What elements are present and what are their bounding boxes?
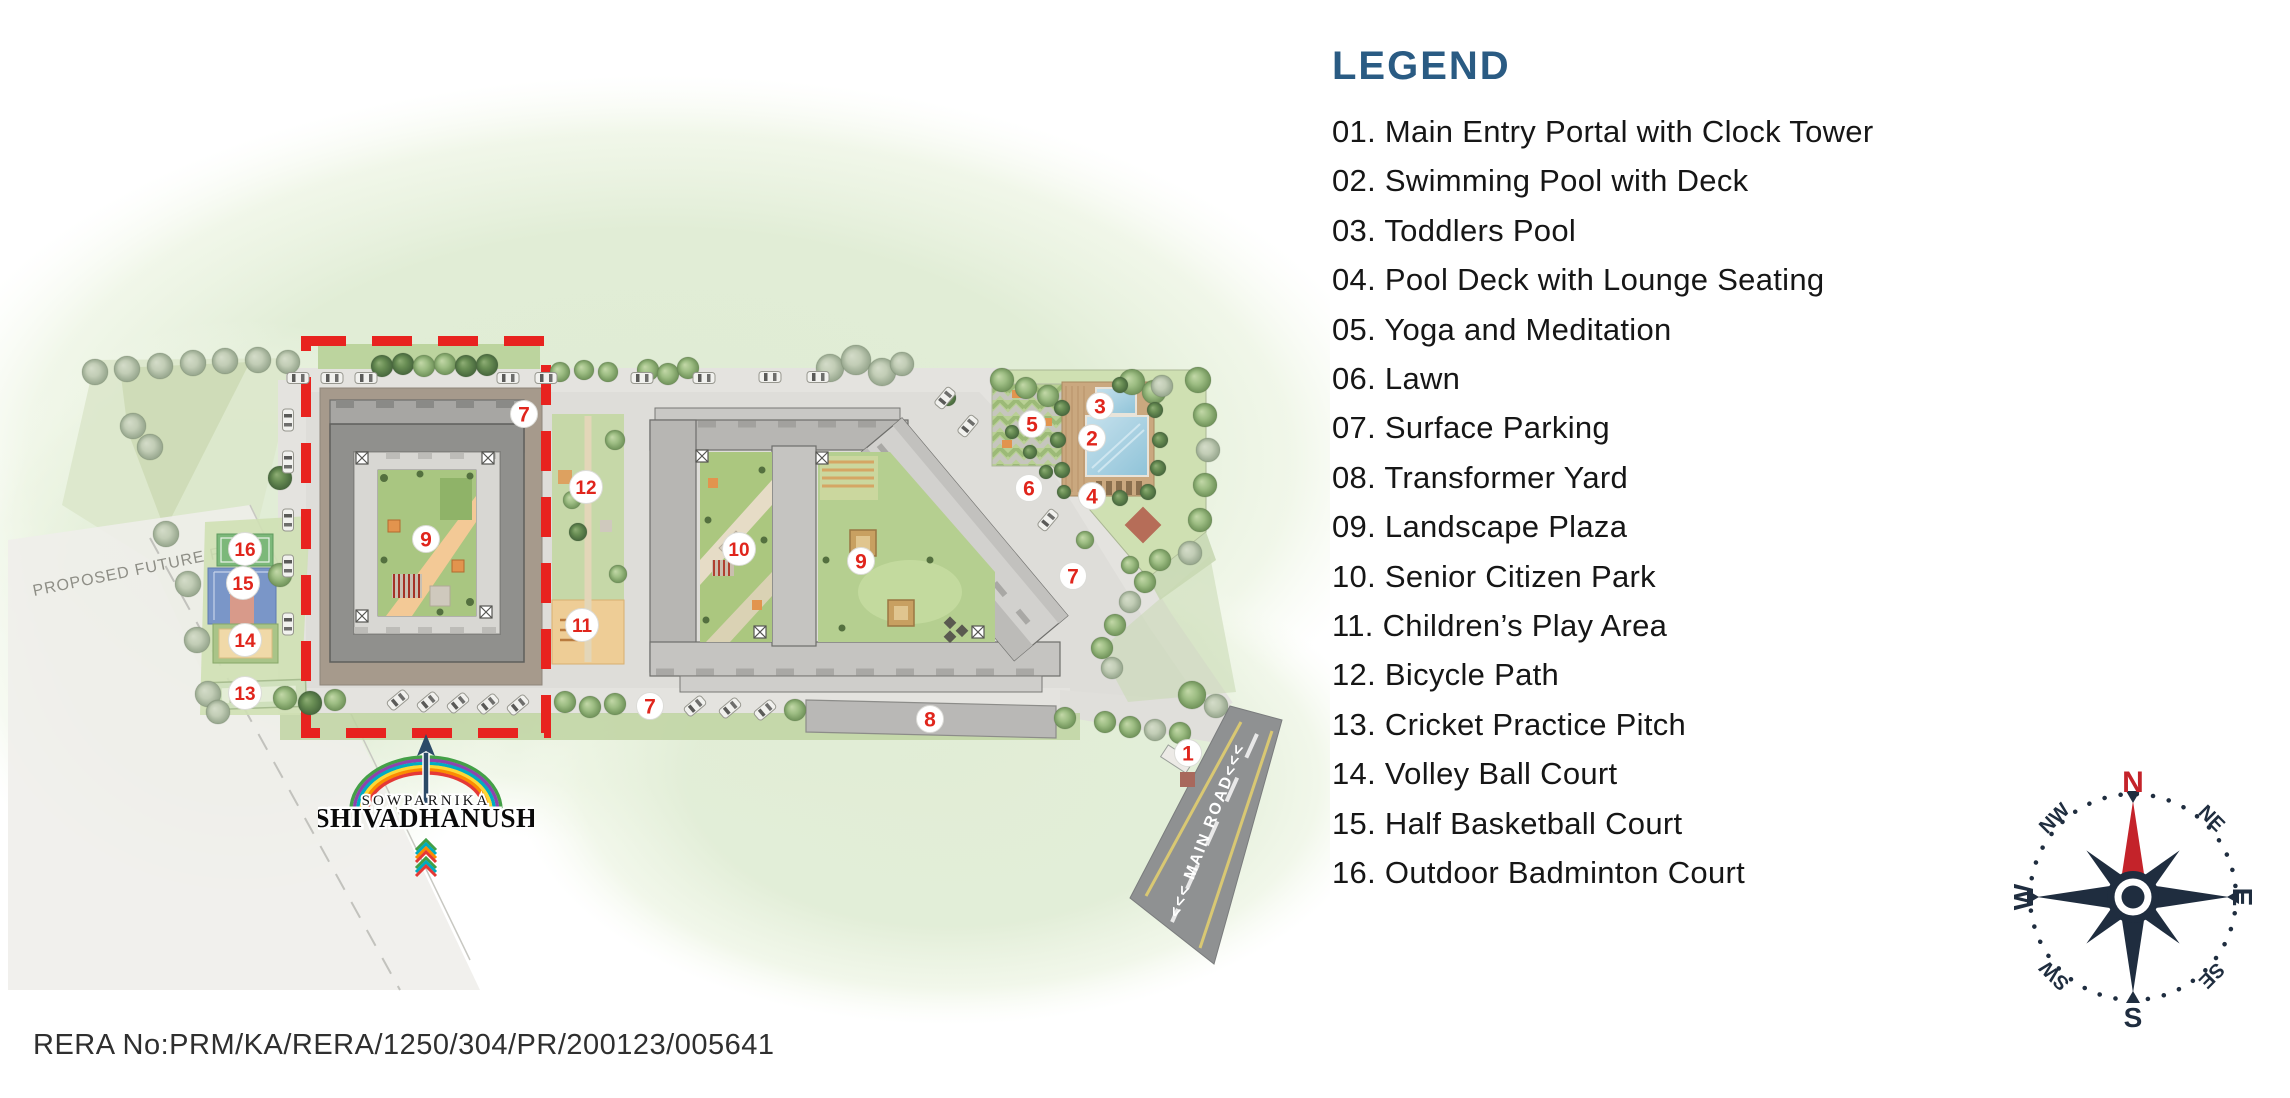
parked-car-icon <box>535 373 557 384</box>
legend-list: 01. Main Entry Portal with Clock Tower02… <box>1332 107 1972 898</box>
tree-icon <box>784 699 806 721</box>
compass-label-sw: SW <box>2035 956 2073 994</box>
parked-car-icon <box>355 373 377 384</box>
map-marker-11: 11 <box>566 609 599 642</box>
tree-icon <box>273 686 297 710</box>
svg-text:13: 13 <box>234 684 255 705</box>
tree-icon <box>1178 681 1206 709</box>
compass-label-nw: NW <box>2035 799 2074 838</box>
legend-item-10: 10. Senior Citizen Park <box>1332 552 1972 601</box>
tree-icon <box>137 434 163 460</box>
tree-icon <box>1150 460 1166 476</box>
tree-icon <box>1147 402 1163 418</box>
legend-item-07: 07. Surface Parking <box>1332 403 1972 452</box>
svg-text:16: 16 <box>234 540 255 561</box>
legend-item-06: 06. Lawn <box>1332 354 1972 403</box>
tree-icon <box>434 353 456 375</box>
legend-title: LEGEND <box>1332 44 1972 89</box>
legend-item-15: 15. Half Basketball Court <box>1332 799 1972 848</box>
tree-icon <box>1193 403 1217 427</box>
svg-text:4: 4 <box>1086 486 1098 509</box>
tree-icon <box>413 355 435 377</box>
legend-item-01: 01. Main Entry Portal with Clock Tower <box>1332 107 1972 156</box>
svg-text:7: 7 <box>518 404 530 427</box>
tree-icon <box>598 362 618 382</box>
compass-label-se: SE <box>2194 958 2228 992</box>
legend-panel: LEGEND 01. Main Entry Portal with Clock … <box>1332 44 1972 898</box>
tree-icon <box>1152 432 1168 448</box>
tree-icon <box>1050 432 1066 448</box>
tree-icon <box>120 413 146 439</box>
tree-icon <box>184 627 210 653</box>
parked-car-icon <box>693 373 715 384</box>
legend-item-09: 09. Landscape Plaza <box>1332 502 1972 551</box>
tree-icon <box>1196 438 1220 462</box>
tree-icon <box>1193 473 1217 497</box>
tree-icon <box>1005 425 1019 439</box>
tree-icon <box>1076 531 1094 549</box>
parked-car-icon <box>287 373 309 384</box>
tree-icon <box>298 691 322 715</box>
map-marker-6: 6 <box>1016 475 1043 502</box>
tree-icon <box>554 691 576 713</box>
tree-icon <box>212 348 238 374</box>
map-marker-13: 13 <box>229 677 262 710</box>
svg-text:15: 15 <box>232 574 254 595</box>
tree-icon <box>604 693 626 715</box>
parked-car-icon <box>283 555 294 577</box>
tree-icon <box>1101 657 1123 679</box>
tree-icon <box>1119 716 1141 738</box>
tree-icon <box>569 523 587 541</box>
svg-text:3: 3 <box>1094 396 1106 419</box>
tree-icon <box>1054 462 1070 478</box>
compass-label-ne: NE <box>2194 801 2229 836</box>
tree-icon <box>1140 484 1156 500</box>
parked-car-icon <box>283 451 294 473</box>
legend-item-05: 05. Yoga and Meditation <box>1332 305 1972 354</box>
legend-item-12: 12. Bicycle Path <box>1332 650 1972 699</box>
tree-icon <box>1054 400 1070 416</box>
tree-icon <box>245 347 271 373</box>
map-marker-10: 10 <box>723 533 756 566</box>
tree-icon <box>890 352 914 376</box>
tree-icon <box>990 368 1014 392</box>
map-marker-8: 8 <box>917 706 944 733</box>
legend-item-14: 14. Volley Ball Court <box>1332 749 1972 798</box>
svg-text:9: 9 <box>855 551 867 574</box>
parked-car-icon <box>321 373 343 384</box>
tree-icon <box>455 355 477 377</box>
legend-item-02: 02. Swimming Pool with Deck <box>1332 156 1972 205</box>
compass-label-e: E <box>2227 888 2258 907</box>
site-plan: PROPOSED FUTURE ROAD <box>0 0 1330 1098</box>
tree-icon <box>1121 556 1139 574</box>
tree-icon <box>609 565 627 583</box>
map-marker-7: 7 <box>1060 563 1087 590</box>
map-marker-15: 15 <box>227 567 260 600</box>
tree-icon <box>206 700 230 724</box>
tree-icon <box>1149 549 1171 571</box>
tree-icon <box>841 345 871 375</box>
parked-car-icon <box>497 373 519 384</box>
tree-icon <box>1178 541 1202 565</box>
tree-icon <box>82 359 108 385</box>
project-logo: SOWPARNIKA SHIVADHANUSH <box>318 726 534 880</box>
legend-item-04: 04. Pool Deck with Lounge Seating <box>1332 255 1972 304</box>
tree-icon <box>114 356 140 382</box>
compass-label-w: W <box>2008 883 2039 910</box>
tree-icon <box>574 360 594 380</box>
svg-text:14: 14 <box>234 631 256 652</box>
tree-icon <box>175 571 201 597</box>
tree-icon <box>1185 367 1211 393</box>
legend-item-11: 11. Children’s Play Area <box>1332 601 1972 650</box>
rera-number: RERA No:PRM/KA/RERA/1250/304/PR/200123/0… <box>33 1029 774 1062</box>
svg-text:7: 7 <box>644 696 656 719</box>
legend-item-08: 08. Transformer Yard <box>1332 453 1972 502</box>
tree-icon <box>605 430 625 450</box>
map-marker-4: 4 <box>1079 483 1106 510</box>
tree-icon <box>1112 377 1128 393</box>
tree-icon <box>147 353 173 379</box>
tree-icon <box>1039 465 1053 479</box>
tree-icon <box>1023 445 1037 459</box>
svg-text:5: 5 <box>1026 414 1038 437</box>
svg-text:12: 12 <box>575 478 596 499</box>
parked-car-icon <box>283 509 294 531</box>
map-marker-14: 14 <box>229 624 262 657</box>
compass-rose-icon: N S E W NE NW SE SW <box>1995 755 2275 1045</box>
tree-icon <box>1112 490 1128 506</box>
map-marker-7: 7 <box>637 693 664 720</box>
parked-car-icon <box>807 372 829 383</box>
brochure-page: PROPOSED FUTURE ROAD <box>0 0 2290 1098</box>
tree-icon <box>579 696 601 718</box>
parked-car-icon <box>759 372 781 383</box>
tree-icon <box>276 350 300 374</box>
entry-portal <box>1180 772 1195 787</box>
tree-icon <box>324 689 346 711</box>
tree-icon <box>1015 377 1037 399</box>
svg-text:1: 1 <box>1182 743 1194 766</box>
tree-icon <box>1091 637 1113 659</box>
tree-icon <box>1188 508 1212 532</box>
tree-icon <box>180 350 206 376</box>
svg-text:2: 2 <box>1086 428 1098 451</box>
tree-icon <box>153 521 179 547</box>
tree-icon <box>1144 719 1166 741</box>
parked-car-icon <box>631 373 653 384</box>
svg-text:7: 7 <box>1067 566 1079 589</box>
legend-item-13: 13. Cricket Practice Pitch <box>1332 700 1972 749</box>
svg-text:6: 6 <box>1023 478 1035 501</box>
compass-label-s: S <box>2124 1002 2143 1033</box>
tree-icon <box>1104 614 1126 636</box>
logo-project: SHIVADHANUSH <box>318 803 534 833</box>
map-marker-3: 3 <box>1087 393 1114 420</box>
map-marker-9: 9 <box>413 526 440 553</box>
map-marker-5: 5 <box>1019 411 1046 438</box>
svg-text:11: 11 <box>572 616 593 637</box>
tree-icon <box>1204 694 1228 718</box>
parked-car-icon <box>283 409 294 431</box>
map-marker-16: 16 <box>229 533 262 566</box>
svg-text:9: 9 <box>420 529 432 552</box>
compass-label-n: N <box>2122 766 2144 799</box>
svg-text:10: 10 <box>728 540 749 561</box>
tree-icon <box>1057 485 1071 499</box>
svg-text:8: 8 <box>924 709 936 732</box>
tree-icon <box>1119 591 1141 613</box>
tree-icon <box>1094 711 1116 733</box>
tree-icon <box>392 353 414 375</box>
tree-icon <box>1151 375 1173 397</box>
map-marker-12: 12 <box>570 471 603 504</box>
parked-car-icon <box>283 613 294 635</box>
legend-item-03: 03. Toddlers Pool <box>1332 206 1972 255</box>
tree-icon <box>1134 571 1156 593</box>
map-marker-7: 7 <box>511 401 538 428</box>
map-marker-1: 1 <box>1175 740 1202 767</box>
tree-icon <box>476 354 498 376</box>
tree-icon <box>657 363 679 385</box>
map-marker-2: 2 <box>1079 425 1106 452</box>
legend-item-16: 16. Outdoor Badminton Court <box>1332 848 1972 897</box>
tree-icon <box>1054 707 1076 729</box>
map-marker-9: 9 <box>848 548 875 575</box>
